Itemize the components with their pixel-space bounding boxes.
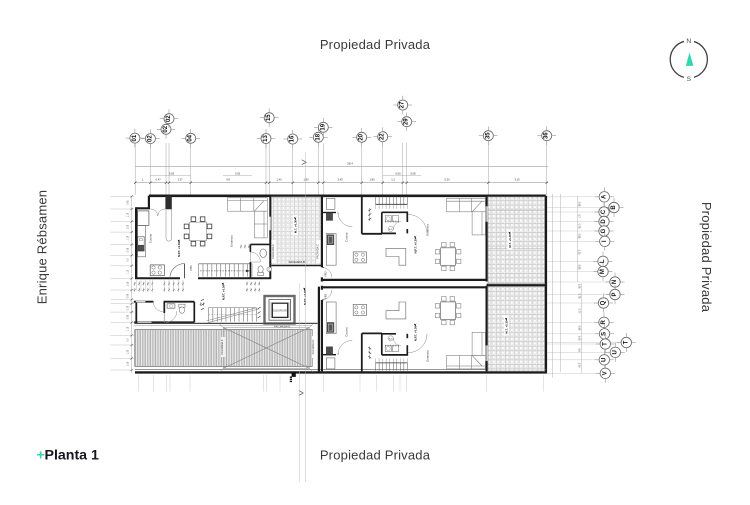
svg-text:16: 16 <box>290 135 296 142</box>
svg-text:M.T. +0.30: M.T. +0.30 <box>294 219 298 233</box>
svg-text:3.40: 3.40 <box>337 178 343 182</box>
svg-text:02: 02 <box>163 125 169 132</box>
svg-text:5.05: 5.05 <box>169 171 175 175</box>
svg-text:FACHADA E: FACHADA E <box>274 325 290 329</box>
svg-text:1.40: 1.40 <box>276 178 282 182</box>
svg-text:FACHADA B: FACHADA B <box>289 260 305 264</box>
svg-text:0.47: 0.47 <box>156 178 162 182</box>
svg-text:1.08: 1.08 <box>128 361 130 366</box>
svg-text:0.98: 0.98 <box>578 202 581 207</box>
svg-text:R: R <box>601 319 607 324</box>
svg-text:27: 27 <box>400 101 406 108</box>
svg-text:N: N <box>686 38 691 45</box>
svg-text:S: S <box>687 76 692 83</box>
svg-text:0.98: 0.98 <box>128 247 130 252</box>
svg-text:1.18: 1.18 <box>128 235 130 240</box>
svg-text:U: U <box>601 358 607 362</box>
svg-text:02: 02 <box>147 135 153 142</box>
svg-text:S: S <box>602 332 608 336</box>
svg-text:1.05: 1.05 <box>578 336 581 341</box>
svg-text:Enrique Rébsamen: Enrique Rébsamen <box>35 190 50 305</box>
svg-text:Estancia: Estancia <box>229 235 233 247</box>
svg-text:B: B <box>611 205 617 210</box>
svg-text:1.80: 1.80 <box>369 178 375 182</box>
svg-text:0.77: 0.77 <box>578 309 581 314</box>
svg-text:Cocina: Cocina <box>344 327 348 337</box>
svg-text:20: 20 <box>359 133 365 140</box>
svg-text:0.88: 0.88 <box>578 326 581 331</box>
svg-text:0.78: 0.78 <box>578 224 581 229</box>
svg-text:PB3: PB3 <box>324 293 328 299</box>
svg-text:Estancia: Estancia <box>426 224 430 236</box>
svg-text:FACHADA C: FACHADA C <box>316 244 320 259</box>
svg-text:0.60: 0.60 <box>395 171 401 175</box>
svg-text:1.15: 1.15 <box>128 269 130 274</box>
svg-text:29: 29 <box>404 118 410 125</box>
svg-text:Propiedad Privada: Propiedad Privada <box>699 202 714 313</box>
svg-text:PB2: PB2 <box>324 271 328 277</box>
svg-text:0.78: 0.78 <box>578 294 581 299</box>
svg-text:M.T. +0.30: M.T. +0.30 <box>508 234 512 248</box>
svg-text:Estancia: Estancia <box>426 350 430 362</box>
svg-text:Propiedad Privada: Propiedad Privada <box>320 448 431 463</box>
svg-text:0.88: 0.88 <box>578 234 581 239</box>
svg-text:13: 13 <box>263 135 269 142</box>
svg-text:4.8: 4.8 <box>226 178 230 182</box>
svg-text:36: 36 <box>544 132 550 139</box>
svg-text:Cocina: Cocina <box>344 232 348 242</box>
svg-text:01: 01 <box>132 134 138 141</box>
svg-text:PB1: PB1 <box>189 265 193 271</box>
svg-text:0.88: 0.88 <box>578 265 581 270</box>
svg-text:35: 35 <box>485 132 491 139</box>
svg-text:0.60: 0.60 <box>128 200 130 205</box>
svg-text:1.08: 1.08 <box>578 284 581 289</box>
svg-text:V: V <box>602 371 608 375</box>
svg-text:1.05: 1.05 <box>128 224 130 229</box>
svg-text:5.05: 5.05 <box>235 171 241 175</box>
svg-text:0.88: 0.88 <box>128 314 130 319</box>
svg-text:N.P.T. +0.30: N.P.T. +0.30 <box>221 285 225 301</box>
svg-text:M: M <box>600 269 606 274</box>
svg-text:1.18: 1.18 <box>128 212 130 217</box>
svg-text:5.30: 5.30 <box>444 178 450 182</box>
svg-text:22: 22 <box>380 133 386 140</box>
svg-text:N.P.T. +0.30: N.P.T. +0.30 <box>177 242 181 258</box>
svg-text:1.80: 1.80 <box>303 178 309 182</box>
svg-text:18: 18 <box>315 133 321 140</box>
svg-text:04: 04 <box>188 134 194 141</box>
svg-text:N.P.T. +0.30: N.P.T. +0.30 <box>414 326 418 342</box>
svg-text:0.78: 0.78 <box>128 305 130 310</box>
svg-text:Cocina: Cocina <box>149 234 153 244</box>
svg-text:N: N <box>612 280 618 284</box>
svg-text:B-01: B-01 <box>389 229 393 231</box>
svg-text:T: T <box>623 340 629 344</box>
svg-text:02: 02 <box>166 115 172 122</box>
svg-text:38.4: 38.4 <box>347 162 353 166</box>
svg-text:ELEVADOR: ELEVADOR <box>273 309 287 312</box>
svg-text:1.08: 1.08 <box>128 281 130 286</box>
svg-text:A: A <box>601 194 607 199</box>
svg-text:Planta 1: Planta 1 <box>45 448 100 464</box>
svg-text:Propiedad Privada: Propiedad Privada <box>320 37 431 52</box>
svg-text:15: 15 <box>266 114 272 121</box>
svg-text:N.P.T. +0.30: N.P.T. +0.30 <box>414 238 418 254</box>
svg-text:19: 19 <box>320 123 326 130</box>
svg-text:1.15: 1.15 <box>578 250 581 255</box>
svg-text:M.T. +0.30: M.T. +0.30 <box>505 320 509 334</box>
svg-text:G: G <box>601 228 607 233</box>
svg-text:0.88: 0.88 <box>128 293 130 298</box>
svg-text:U: U <box>612 350 618 354</box>
svg-text:3.15: 3.15 <box>514 178 520 182</box>
svg-text:1.37: 1.37 <box>177 178 183 182</box>
svg-text:P: P <box>612 292 618 296</box>
svg-text:N.P.T. +0.30: N.P.T. +0.30 <box>303 290 307 306</box>
svg-text:FACHADA D: FACHADA D <box>311 340 315 355</box>
svg-text:FACHADA F: FACHADA F <box>220 339 224 354</box>
svg-text:1.18: 1.18 <box>128 326 130 331</box>
svg-text:1.2: 1.2 <box>391 178 395 182</box>
svg-text:T: T <box>602 342 608 346</box>
svg-text:1.05: 1.05 <box>578 363 581 368</box>
svg-text:C: C <box>268 267 270 271</box>
svg-text:Q: Q <box>601 300 607 305</box>
svg-text:1.25: 1.25 <box>128 349 130 354</box>
svg-text:B-01: B-01 <box>389 338 393 340</box>
svg-text:5.08: 5.08 <box>410 171 416 175</box>
svg-text:FACHADA A: FACHADA A <box>271 244 275 259</box>
